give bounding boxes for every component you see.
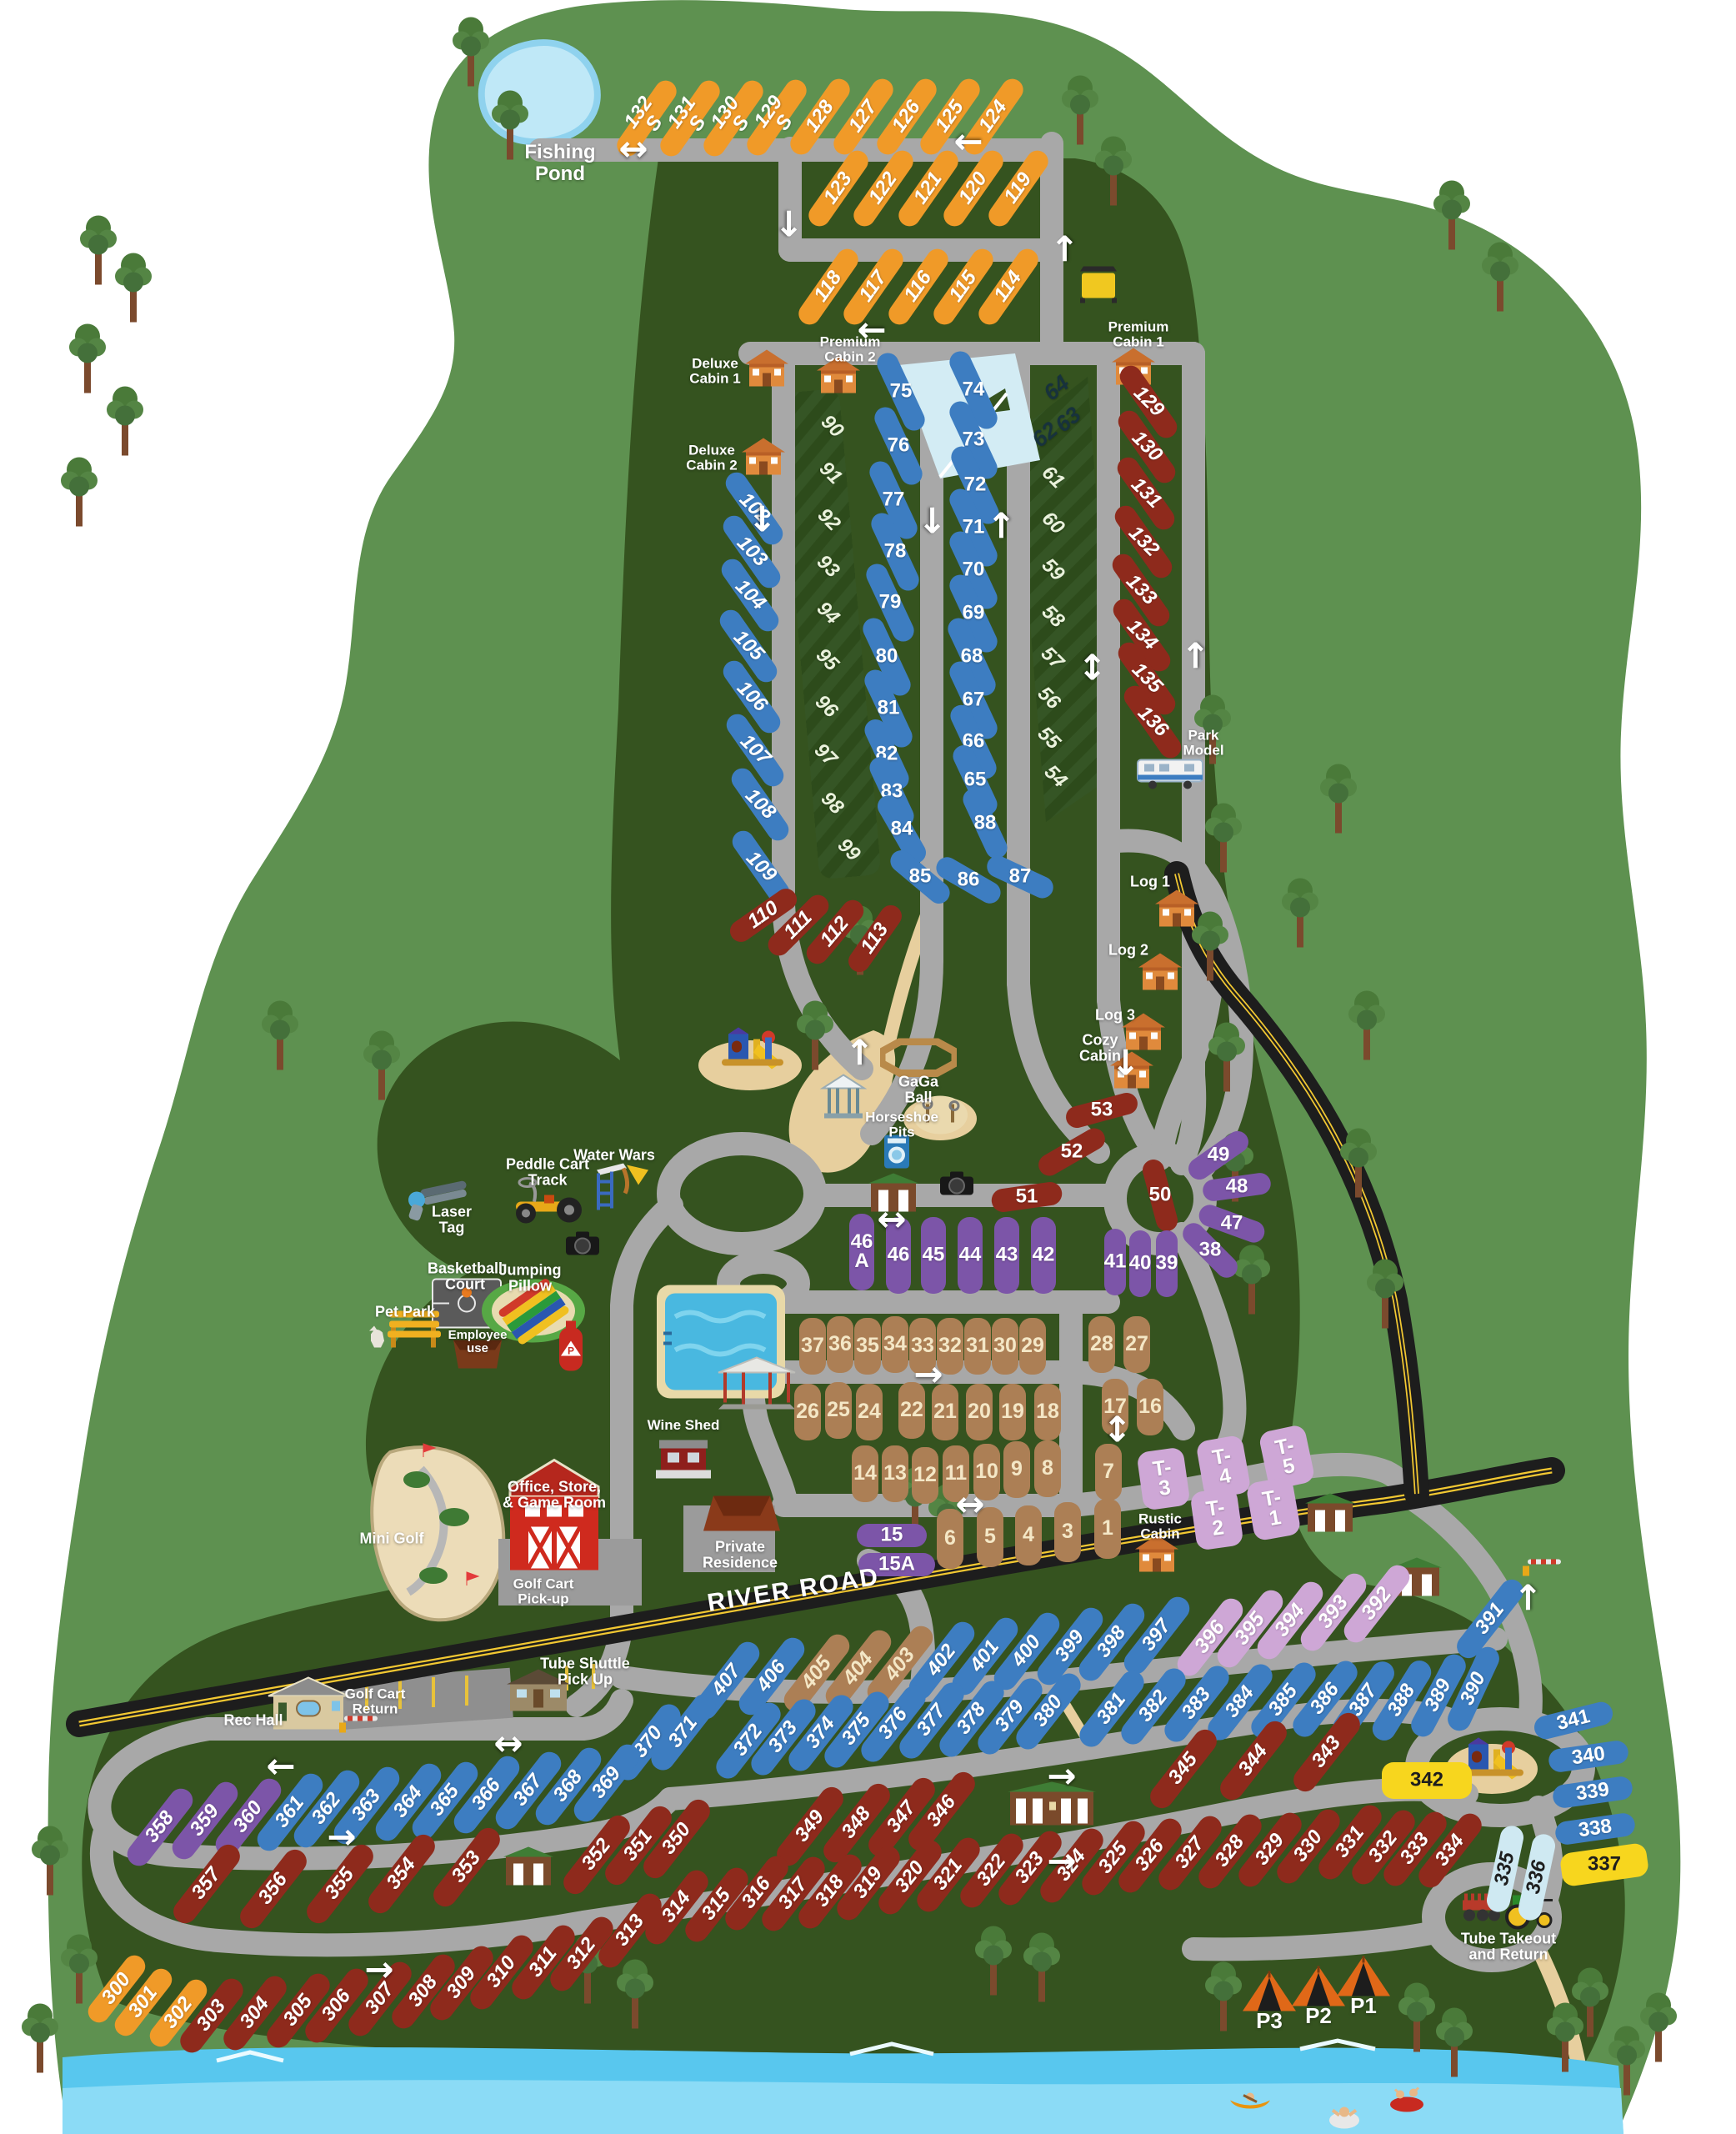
residence-pad: [683, 1505, 775, 1572]
river: [63, 2041, 1623, 2134]
campground-map: P 132 S131 S130 S129 S128127126125124123…: [0, 0, 1736, 2134]
golf-cart-pickup-pad: [498, 1539, 642, 1606]
fishing-pond: [482, 43, 598, 142]
basemap: [0, 0, 1736, 2134]
